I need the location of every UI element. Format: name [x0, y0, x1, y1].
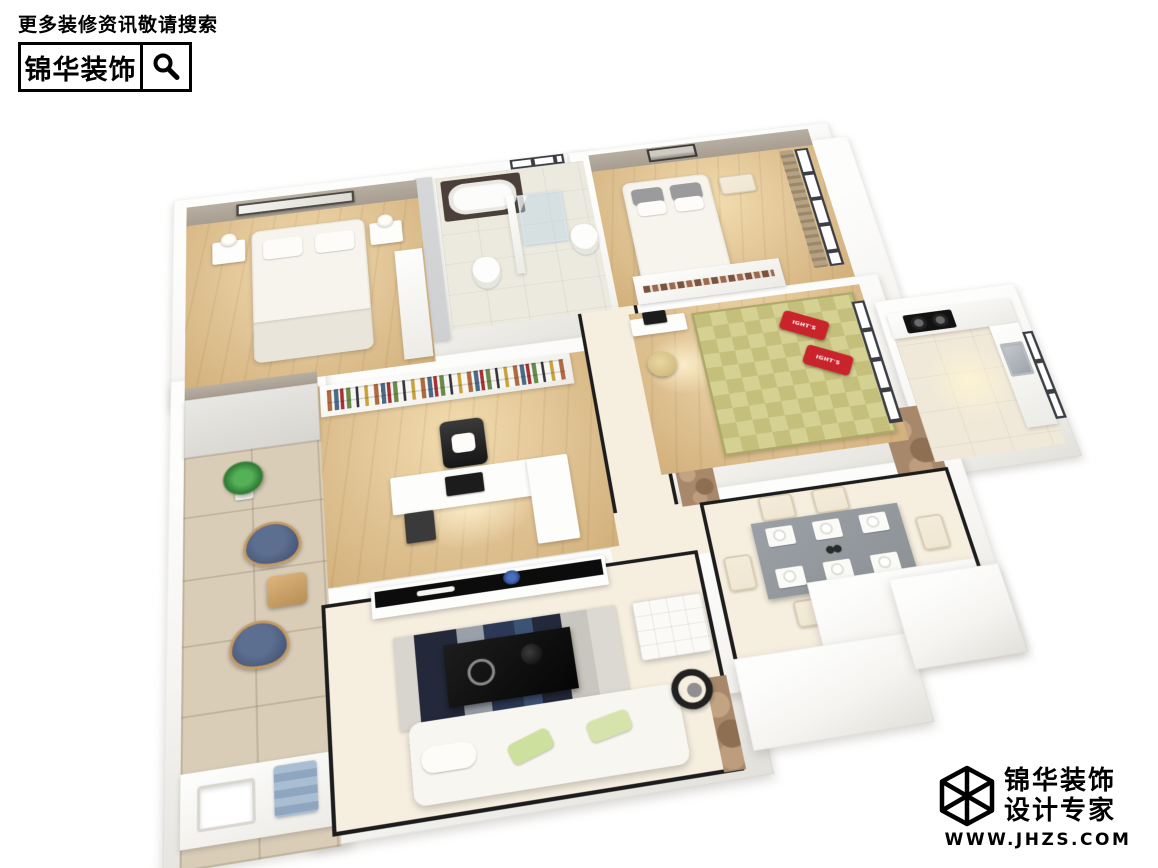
desk-drawer-unit: [404, 510, 436, 544]
green-pillow-1: [506, 727, 556, 767]
plate: [818, 522, 834, 535]
green-pillow-2: [585, 708, 634, 744]
glass-shower: [517, 190, 570, 245]
plate: [877, 555, 893, 569]
white-pillow-right: [674, 195, 705, 212]
side-table: [267, 571, 308, 608]
blue-towel: [273, 760, 318, 819]
placemat-4: [775, 565, 807, 588]
placemat-1: [765, 525, 797, 547]
plate: [865, 515, 881, 528]
search-hint-text: 更多装修资讯敬请搜索: [18, 10, 218, 37]
sofa-cushion-left: [420, 740, 477, 775]
chair-pillow: [451, 432, 476, 454]
plate: [829, 562, 845, 576]
bed-pillow-right: [315, 230, 355, 254]
plate: [772, 529, 788, 543]
placemat-2: [812, 518, 844, 540]
watermark-bottom-right: 锦华装饰 设计专家 WWW.JHZS.COM: [938, 765, 1138, 850]
cube-logo-glyph: [938, 765, 996, 827]
double-bed: [251, 218, 374, 363]
decor-ring: [466, 657, 496, 688]
plate: [782, 569, 798, 583]
watermark-top-left: 更多装修资讯敬请搜索 锦华装饰: [18, 10, 218, 92]
white-pillow-left: [636, 200, 667, 217]
ottoman: [632, 592, 713, 661]
bed-pillow-left: [263, 236, 303, 260]
brand-search-box: 锦华装饰: [18, 42, 192, 92]
entrance-step-block: [889, 563, 1028, 670]
master-bedroom: [185, 180, 436, 395]
apartment-plan: IGHT'S IGHT'S: [162, 108, 1158, 868]
brand-name-bottom: 锦华装饰: [1004, 766, 1116, 796]
laundry-sink: [197, 778, 256, 833]
placemat-3: [858, 511, 890, 533]
brand-tagline: 设计专家: [1004, 796, 1116, 826]
decor-bottles: [520, 642, 544, 666]
website-url: WWW.JHZS.COM: [938, 830, 1138, 850]
floorplan-render-canvas: 更多装修资讯敬请搜索 锦华装饰: [0, 0, 1158, 868]
floorplan-3d-scene: IGHT'S IGHT'S: [0, 0, 1158, 868]
cube-logo-icon: [938, 765, 996, 827]
magnifier-icon: [140, 45, 189, 89]
magnifier-glyph: [151, 52, 181, 82]
wardrobe-pattern-strip: [643, 269, 775, 293]
brand-name: 锦华装饰: [21, 45, 140, 89]
table-centerpiece: [823, 542, 844, 557]
office-chair: [439, 417, 489, 469]
